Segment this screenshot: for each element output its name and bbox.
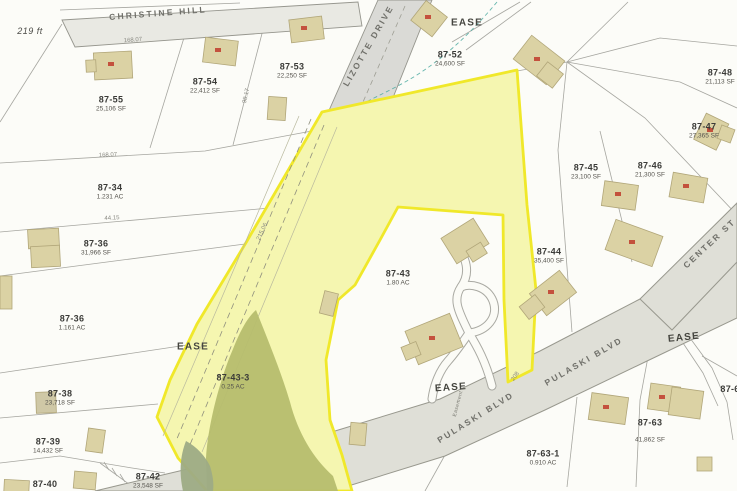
dimension-label: 168.07 — [124, 37, 143, 45]
parcel-label-87-6-partial: 87-6 — [720, 384, 737, 394]
parcel-label-87-43-3: 87-43-3 0.25 AC — [216, 373, 249, 392]
parcel-label-87-36-a: 87-36 31,966 SF — [81, 239, 111, 258]
parcel-label-87-52: 87-52 24,600 SF — [435, 50, 465, 69]
parcel-label-87-63: 87-63 41,862 SF — [635, 418, 665, 445]
dimension-label: 44.15 — [104, 215, 119, 223]
easement-label-top: EASE — [451, 17, 483, 29]
dimension-label: 168.07 — [99, 152, 118, 160]
map-canvas[interactable]: 219 ft CHRISTINE HILL LIZOTTE DRIVE PULA… — [0, 0, 737, 491]
parcel-label-87-55: 87-55 25,106 SF — [96, 95, 126, 114]
scale-label: 219 ft — [17, 26, 43, 36]
parcel-label-87-36-b: 87-36 1.161 AC — [59, 314, 86, 333]
parcel-label-87-46: 87-46 21,300 SF — [635, 161, 665, 180]
parcel-label-87-43: 87-43 1.80 AC — [386, 269, 411, 288]
parcel-label-87-45: 87-45 23,100 SF — [571, 163, 601, 182]
parcel-label-87-34: 87-34 1.231 AC — [97, 183, 124, 202]
parcel-label-87-47: 87-47 27,365 SF — [689, 122, 719, 141]
parcel-label-87-38: 87-38 23,718 SF — [45, 389, 75, 408]
parcel-label-87-44: 87-44 35,400 SF — [534, 247, 564, 266]
easement-label-left: EASE — [177, 341, 209, 353]
parcel-label-87-63-1: 87-63-1 0.910 AC — [526, 449, 559, 468]
parcel-label-87-48: 87-48 21,113 SF — [705, 68, 735, 87]
parcel-label-87-42: 87-42 23,548 SF — [133, 472, 163, 491]
parcel-label-87-54: 87-54 22,412 SF — [190, 77, 220, 96]
parcel-label-87-40: 87-40 — [33, 479, 58, 489]
parcel-label-87-53: 87-53 22,250 SF — [277, 62, 307, 81]
parcel-label-87-39: 87-39 14,432 SF — [33, 437, 63, 456]
